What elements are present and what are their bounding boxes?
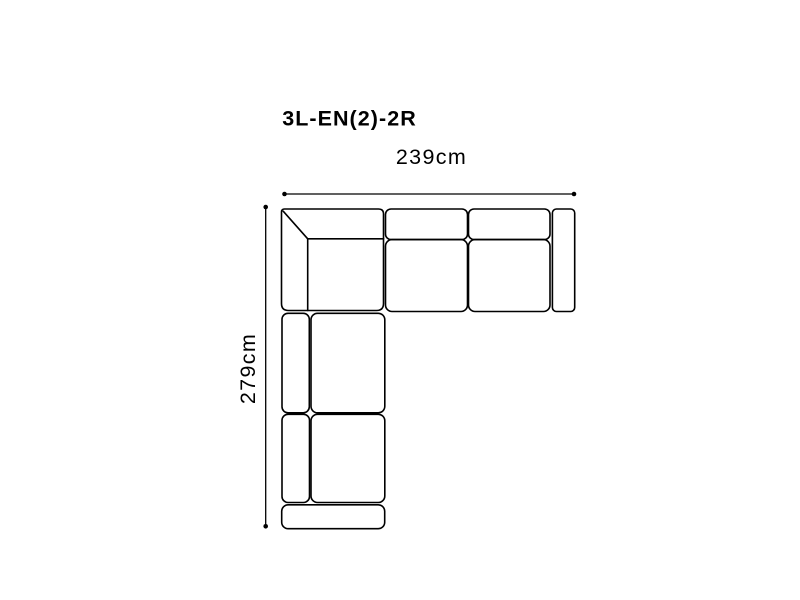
svg-text:239cm: 239cm [396,145,467,169]
svg-text:279cm: 279cm [236,333,260,404]
svg-text:3L-EN(2)-2R: 3L-EN(2)-2R [282,107,417,131]
